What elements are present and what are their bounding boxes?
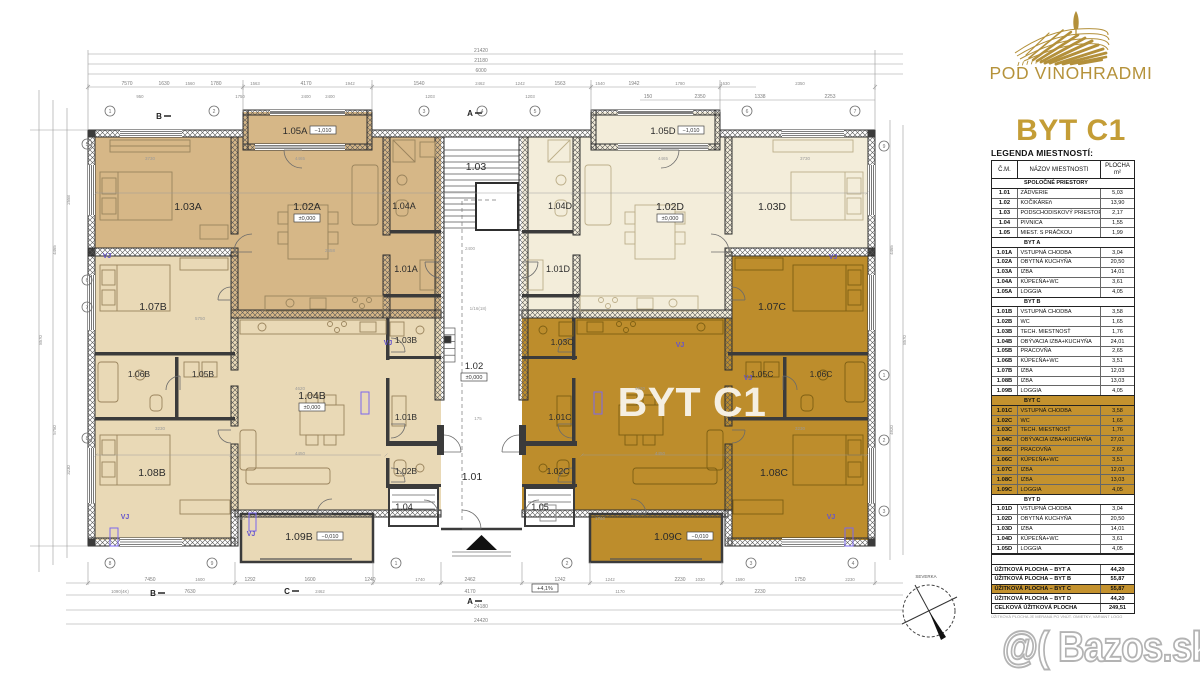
svg-text:5750: 5750 [195,316,206,321]
svg-text:4465: 4465 [658,156,669,161]
svg-text:150: 150 [644,94,653,100]
svg-text:1563: 1563 [554,81,565,87]
svg-text:1.01B: 1.01B [395,412,418,422]
svg-text:21180: 21180 [474,58,488,64]
svg-text:1.02B: 1.02B [395,466,418,476]
svg-text:SEVERKA: SEVERKA [915,574,936,579]
svg-text:VJ: VJ [103,253,112,260]
svg-text:1: 1 [395,561,398,567]
svg-text:1.03D: 1.03D [758,201,786,213]
svg-text:2350: 2350 [694,94,705,100]
svg-text:4170: 4170 [464,589,475,595]
svg-text:1540: 1540 [595,81,605,86]
svg-text:8: 8 [86,436,89,442]
svg-text:4: 4 [852,561,855,567]
svg-text:3230: 3230 [155,426,166,431]
svg-text:1.05A: 1.05A [283,126,308,137]
svg-text:B: B [156,112,162,121]
svg-text:2: 2 [213,109,216,115]
svg-text:1.06C: 1.06C [810,369,833,379]
svg-text:2462: 2462 [475,81,485,86]
svg-text:+4,1%: +4,1% [537,586,553,592]
svg-text:1170: 1170 [615,589,625,594]
svg-text:−0,010: −0,010 [692,534,709,540]
svg-text:1.04B: 1.04B [298,390,325,402]
svg-text:1.05: 1.05 [531,502,549,512]
svg-text:3730: 3730 [800,156,811,161]
svg-text:4170: 4170 [300,81,311,87]
svg-text:1.04D: 1.04D [548,201,573,211]
svg-text:1.03A: 1.03A [174,201,201,213]
svg-text:VJ: VJ [121,514,130,521]
svg-text:2462: 2462 [464,577,475,583]
svg-text:2350: 2350 [795,81,805,86]
svg-text:±0,000: ±0,000 [299,216,316,222]
svg-text:±0,000: ±0,000 [662,216,679,222]
svg-text:1600: 1600 [304,577,315,583]
svg-text:1760: 1760 [595,516,606,521]
svg-text:175: 175 [474,416,482,421]
svg-text:2558: 2558 [66,195,71,205]
svg-text:7: 7 [854,109,857,115]
svg-text:7450: 7450 [144,577,155,583]
svg-text:1.03C: 1.03C [551,337,574,347]
svg-text:3: 3 [750,561,753,567]
svg-text:2400: 2400 [325,94,335,99]
svg-text:2: 2 [566,561,569,567]
svg-text:1630: 1630 [720,81,730,86]
svg-text:1600: 1600 [195,577,205,582]
svg-text:9: 9 [211,561,214,567]
svg-text:1.08B: 1.08B [138,467,165,479]
svg-text:4620: 4620 [295,386,306,391]
svg-text:1.07C: 1.07C [758,301,786,313]
svg-text:1.03B: 1.03B [395,335,418,345]
svg-text:5750: 5750 [52,425,57,435]
svg-text:1.02D: 1.02D [656,201,684,213]
svg-text:VJ: VJ [827,514,836,521]
svg-text:1240: 1240 [364,577,375,583]
svg-text:1630: 1630 [158,81,169,87]
svg-text:950: 950 [136,94,144,99]
svg-text:1.04A: 1.04A [392,201,416,211]
svg-text:1.02A: 1.02A [293,201,320,213]
svg-text:VJ: VJ [829,254,838,261]
svg-text:1760: 1760 [235,516,246,521]
svg-text:1292: 1292 [244,577,255,583]
svg-text:3230: 3230 [795,426,806,431]
svg-text:24180: 24180 [474,604,488,610]
svg-text:A: A [467,109,473,118]
svg-text:1942: 1942 [628,81,639,87]
svg-text:2462: 2462 [315,589,325,594]
svg-text:A: A [467,597,473,606]
svg-text:8570: 8570 [38,335,43,345]
svg-text:1.03: 1.03 [466,161,487,173]
svg-text:1.01D: 1.01D [546,264,571,274]
svg-text:3230: 3230 [66,465,71,475]
svg-text:445: 445 [156,248,164,253]
svg-text:4465: 4465 [295,156,306,161]
svg-text:2230: 2230 [754,589,765,595]
svg-text:2: 2 [883,438,886,444]
svg-text:1780: 1780 [210,81,221,87]
svg-text:1242: 1242 [605,577,615,582]
svg-text:C: C [284,587,290,596]
svg-text:1338: 1338 [754,94,765,100]
svg-text:1560: 1560 [185,81,195,86]
svg-text:VJ: VJ [247,531,256,538]
svg-text:1590: 1590 [735,577,745,582]
svg-text:1750: 1750 [794,577,805,583]
svg-text:−0,010: −0,010 [322,534,339,540]
svg-text:1203: 1203 [525,94,535,99]
svg-text:1.04: 1.04 [395,502,413,512]
svg-text:4620: 4620 [635,386,646,391]
svg-text:5: 5 [86,142,89,148]
svg-text:1: 1 [109,109,112,115]
svg-text:VJ: VJ [676,342,685,349]
svg-text:2230: 2230 [674,577,685,583]
svg-text:4465: 4465 [889,245,894,255]
svg-text:1242: 1242 [515,81,525,86]
svg-text:2253: 2253 [824,94,835,100]
svg-text:4920: 4920 [889,425,894,435]
svg-text:1.05C: 1.05C [751,369,774,379]
svg-text:1090(4K): 1090(4K) [111,589,129,594]
svg-text:6: 6 [746,109,749,115]
svg-text:3: 3 [423,109,426,115]
svg-text:2400: 2400 [465,246,476,251]
svg-text:±0,000: ±0,000 [304,405,321,411]
svg-text:6: 6 [86,278,89,284]
svg-text:1.08C: 1.08C [760,467,788,479]
svg-text:1.05B: 1.05B [192,369,215,379]
svg-text:1.09B: 1.09B [285,531,312,543]
svg-text:1.01: 1.01 [462,471,483,483]
svg-text:1.06B: 1.06B [128,369,151,379]
svg-text:1030: 1030 [695,577,705,582]
svg-text:7630: 7630 [184,589,195,595]
svg-text:±0,000: ±0,000 [466,375,483,381]
svg-text:9: 9 [883,144,886,150]
svg-text:21420: 21420 [474,48,488,54]
svg-text:1.05D: 1.05D [650,126,675,137]
svg-text:1540: 1540 [413,81,424,87]
svg-text:1.01C: 1.01C [549,412,572,422]
svg-text:1.02C: 1.02C [547,466,570,476]
svg-text:B: B [150,589,156,598]
svg-text:1.02: 1.02 [465,361,484,372]
svg-text:1740: 1740 [415,577,425,582]
svg-text:1780: 1780 [675,81,685,86]
svg-text:2400: 2400 [301,94,311,99]
svg-text:1.09C: 1.09C [654,531,682,543]
svg-text:VJ: VJ [384,340,393,347]
svg-text:3730: 3730 [145,156,156,161]
svg-text:6000: 6000 [475,68,486,74]
svg-text:8: 8 [109,561,112,567]
svg-text:4450: 4450 [655,451,666,456]
svg-text:7570: 7570 [121,81,132,87]
svg-text:1242: 1242 [554,577,565,583]
svg-text:−1,010: −1,010 [315,128,332,134]
svg-text:1750: 1750 [235,94,245,99]
svg-text:1.07B: 1.07B [139,301,166,313]
svg-text:2558: 2558 [325,248,336,253]
svg-text:−1,010: −1,010 [683,128,700,134]
svg-text:1/16(18): 1/16(18) [470,306,487,311]
svg-text:7: 7 [86,305,89,311]
svg-text:1203: 1203 [425,94,435,99]
svg-text:8570: 8570 [902,335,907,345]
svg-text:1942: 1942 [345,81,355,86]
svg-text:4465: 4465 [52,245,57,255]
svg-text:24420: 24420 [474,618,488,624]
svg-text:5: 5 [534,109,537,115]
svg-text:2230: 2230 [845,577,855,582]
svg-text:4: 4 [481,109,484,115]
svg-text:3: 3 [883,509,886,515]
svg-text:1563: 1563 [250,81,260,86]
svg-text:1.01A: 1.01A [394,264,418,274]
svg-text:4450: 4450 [295,451,306,456]
svg-text:1: 1 [883,373,886,379]
